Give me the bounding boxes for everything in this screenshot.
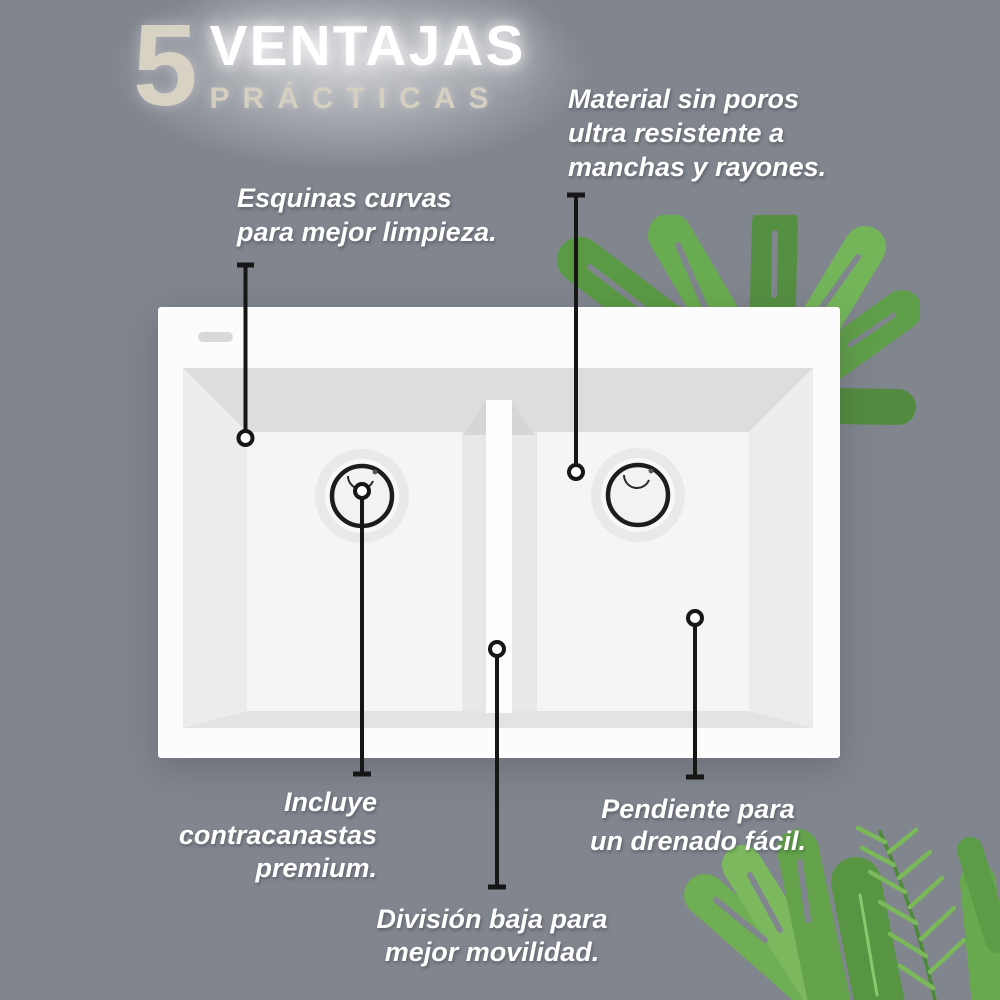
note-line: mejor movilidad. — [376, 936, 607, 969]
note-line: contracanastas — [179, 819, 377, 852]
sink-top-view — [158, 307, 840, 758]
note-line: Esquinas curvas — [237, 181, 497, 215]
note-curved-corners: Esquinas curvas para mejor limpieza. — [237, 181, 497, 249]
note-line: manchas y rayones. — [568, 150, 826, 184]
note-line: para mejor limpieza. — [237, 215, 497, 249]
note-line: Pendiente para — [590, 793, 806, 825]
note-line: Incluye — [179, 786, 377, 819]
note-strainers: Incluye contracanastas premium. — [179, 786, 377, 885]
note-low-divider: División baja para mejor movilidad. — [376, 903, 607, 969]
title-word-bottom: PRÁCTICAS — [210, 84, 526, 114]
note-line: División baja para — [376, 903, 607, 936]
title-word-top: VENTAJAS — [210, 18, 526, 75]
faucet-hole — [198, 332, 233, 342]
infographic-canvas: 5 VENTAJAS PRÁCTICAS — [0, 0, 1000, 1000]
low-divider — [486, 400, 512, 713]
title-number: 5 — [133, 18, 198, 113]
note-line: premium. — [179, 852, 377, 885]
note-line: ultra resistente a — [568, 116, 826, 150]
note-line: Material sin poros — [568, 82, 826, 116]
title-words: VENTAJAS PRÁCTICAS — [210, 18, 526, 114]
page-title: 5 VENTAJAS PRÁCTICAS — [133, 18, 525, 114]
drain-strainer-left-icon — [315, 449, 409, 543]
drain-strainer-right-icon — [591, 448, 685, 542]
note-material: Material sin poros ultra resistente a ma… — [568, 82, 826, 184]
note-line: un drenado fácil. — [590, 825, 806, 857]
note-drainage: Pendiente para un drenado fácil. — [590, 793, 806, 857]
